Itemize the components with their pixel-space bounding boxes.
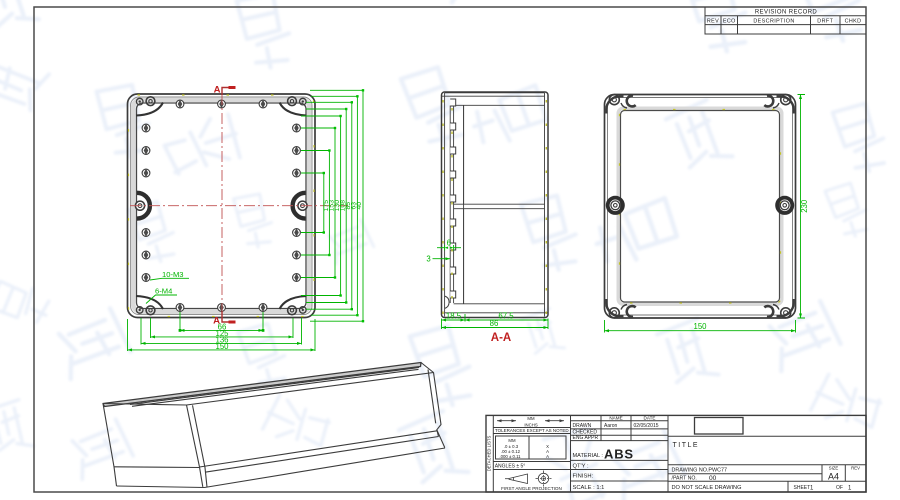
- svg-text:.000 ± 0.11: .000 ± 0.11: [499, 454, 521, 459]
- svg-text:10-M3: 10-M3: [162, 270, 184, 279]
- svg-text:150: 150: [215, 342, 229, 351]
- svg-text:A: A: [214, 85, 221, 96]
- svg-text:SHEET: SHEET: [794, 485, 811, 491]
- svg-text:NAME: NAME: [609, 416, 622, 421]
- svg-text:REV: REV: [851, 465, 860, 470]
- svg-text:QT'Y :: QT'Y :: [573, 464, 590, 470]
- svg-text:/PART NO.: /PART NO.: [672, 475, 697, 481]
- svg-text:FIRST ANGLE PROJECTION: FIRST ANGLE PROJECTION: [501, 486, 562, 491]
- svg-text:REVISION RECORD: REVISION RECORD: [755, 10, 818, 16]
- svg-text:67.5: 67.5: [498, 312, 514, 321]
- svg-text:MM: MM: [508, 438, 516, 443]
- svg-text:DRAWING NO.PWC77: DRAWING NO.PWC77: [672, 467, 728, 473]
- svg-text:ENG APPR: ENG APPR: [573, 435, 599, 441]
- svg-text:DESCRIPTION: DESCRIPTION: [753, 19, 794, 25]
- svg-text:MATERIAL :: MATERIAL :: [573, 453, 604, 459]
- svg-text:86: 86: [490, 319, 499, 328]
- svg-text:Aaron: Aaron: [604, 423, 618, 429]
- svg-text:02/05/2015: 02/05/2015: [634, 423, 659, 429]
- svg-text:150: 150: [693, 322, 707, 331]
- svg-text:TOLERANCES EXCEPT AS NOTED: TOLERANCES EXCEPT AS NOTED: [495, 428, 569, 433]
- svg-text:FINISH:: FINISH:: [573, 474, 594, 480]
- svg-text:REV: REV: [707, 19, 719, 25]
- svg-text:MM: MM: [527, 416, 535, 421]
- svg-text:6-M4: 6-M4: [155, 287, 172, 296]
- svg-text:A: A: [546, 454, 549, 459]
- svg-text:ECO: ECO: [723, 19, 736, 25]
- svg-text:CHKD: CHKD: [845, 19, 862, 25]
- svg-text:TITLE: TITLE: [673, 442, 700, 449]
- svg-text:DO NOT SCALE DRAWING: DO NOT SCALE DRAWING: [672, 485, 742, 491]
- svg-text:1: 1: [810, 486, 814, 492]
- svg-text:00: 00: [709, 475, 717, 482]
- svg-text:DRFT: DRFT: [817, 19, 833, 25]
- svg-text:18.5: 18.5: [446, 312, 462, 321]
- svg-text:40: 40: [356, 202, 363, 210]
- svg-text:DETACHED LISTS: DETACHED LISTS: [486, 436, 491, 472]
- svg-text:230: 230: [800, 199, 809, 213]
- svg-text:A4: A4: [828, 472, 839, 482]
- svg-text:3: 3: [426, 255, 430, 264]
- svg-text:SCALE : 1:1: SCALE : 1:1: [573, 485, 605, 491]
- svg-text:ABS: ABS: [604, 447, 634, 462]
- svg-text:DATE: DATE: [644, 416, 656, 421]
- svg-text:SIZE: SIZE: [829, 465, 839, 470]
- svg-text:INCHS: INCHS: [524, 422, 538, 427]
- svg-text:DRAWN: DRAWN: [573, 423, 592, 429]
- svg-text:1: 1: [848, 486, 852, 492]
- svg-text:6: 6: [447, 239, 451, 248]
- svg-text:ANGLES ± 5°: ANGLES ± 5°: [495, 464, 526, 470]
- svg-text:OF: OF: [836, 485, 843, 491]
- svg-text:A-A: A-A: [491, 332, 511, 344]
